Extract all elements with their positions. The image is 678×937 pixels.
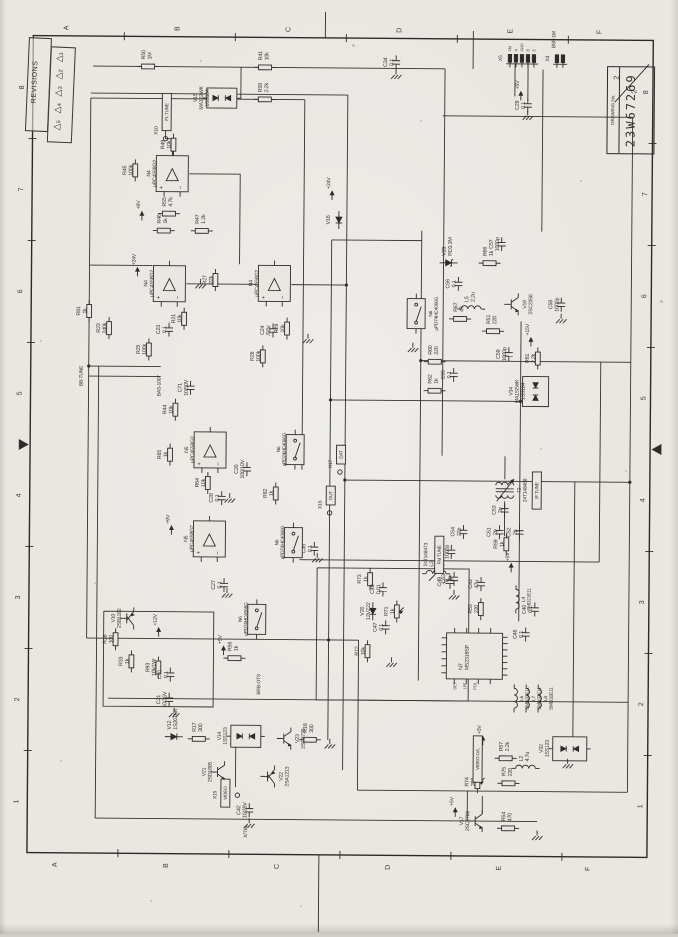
net-label: BB-TUNE xyxy=(79,365,85,386)
net-label: POL xyxy=(472,681,477,689)
drawing-sheet: ABCDEFABCDEF8765432187654321R501MR4110kR… xyxy=(0,0,678,937)
svg-text:N6µPD74HC4066G: N6µPD74HC4066G xyxy=(274,525,286,559)
diode-V28: V28RD3.3M xyxy=(440,236,458,266)
title-block-divider xyxy=(618,67,620,153)
svg-text:N6µPD74HC4066G: N6µPD74HC4066G xyxy=(238,602,250,636)
capacitor-C42: C4210/25V xyxy=(236,802,253,819)
capacitor-C54: C5422p xyxy=(450,525,467,539)
svg-text:R25100k: R25100k xyxy=(136,343,148,354)
svg-text:R554.7k: R554.7k xyxy=(162,197,174,207)
supply-+5V: +5V xyxy=(217,635,225,656)
supply-+9V: +9V xyxy=(136,200,144,221)
svg-text:R621k: R621k xyxy=(428,374,440,384)
capacitor-C20: C20100/10V xyxy=(234,459,251,478)
svg-text:+5V: +5V xyxy=(449,796,455,806)
svg-text:R6410k: R6410k xyxy=(195,478,207,488)
ground-symbol xyxy=(386,657,396,667)
ground-symbol xyxy=(449,590,459,600)
resistor-R75: R75220 xyxy=(497,767,519,786)
supply-+5V: +5V xyxy=(449,796,457,817)
svg-text:V232SC2735: V232SC2735 xyxy=(295,728,307,749)
net-label: 24T148473 xyxy=(423,542,429,566)
ground-symbol xyxy=(225,493,235,503)
drawing-frame: ABCDEFABCDEF8765432187654321 xyxy=(12,9,664,934)
capacitor-C47: C470.1 xyxy=(373,620,390,634)
svg-text:IF TUNE: IF TUNE xyxy=(534,482,539,499)
svg-text:7: 7 xyxy=(18,187,25,191)
svg-text:C7110/50V: C7110/50V xyxy=(178,379,190,396)
supply-+9V: +9V xyxy=(165,514,173,535)
svg-text:3: 3 xyxy=(15,595,22,599)
svg-text:5: 5 xyxy=(16,391,23,395)
revision-delta-5: △₅ xyxy=(51,120,62,131)
revision-markers: △₁△₂△₃△₄△₅ xyxy=(47,46,76,143)
svg-text:C4210/25V: C4210/25V xyxy=(236,802,248,819)
svg-text:C4347u: C4347u xyxy=(468,579,480,589)
sheet-number-bottom: 2 xyxy=(631,90,638,94)
scan-speck xyxy=(660,300,663,303)
svg-text:C: C xyxy=(285,27,292,32)
connector-X4: X4 xyxy=(545,55,567,68)
svg-text:X10: X10 xyxy=(154,126,160,135)
wire xyxy=(542,70,543,232)
resistor-R38: R38100 xyxy=(102,628,118,650)
capacitor-C57: C571000p xyxy=(489,237,506,251)
ground-symbol xyxy=(556,314,566,324)
svg-text:L52.2u: L52.2u xyxy=(464,292,476,302)
net-label: BSF-1M xyxy=(551,31,557,48)
scan-speck xyxy=(60,760,62,762)
drawing-number: 23W67269 xyxy=(623,72,638,148)
dual-diode-V14: V141SS123 xyxy=(217,725,265,747)
svg-text:C560.1: C560.1 xyxy=(445,279,457,289)
capacitor-C52: C522p xyxy=(506,525,523,539)
svg-text:R9310k/1W: R9310k/1W xyxy=(145,658,157,676)
opamp-N4: +−N4µPC4558G2 xyxy=(146,150,188,196)
wire xyxy=(627,117,632,792)
svg-text:C700.1: C700.1 xyxy=(157,670,169,680)
svg-text:FL TUNE: FL TUNE xyxy=(164,103,169,121)
sheet-number-top: 2 xyxy=(613,76,620,80)
net-label: LPF xyxy=(462,682,467,690)
svg-text:VIDEO LVL: VIDEO LVL xyxy=(475,748,480,770)
wire xyxy=(573,482,575,737)
resistor-R41: R4110k xyxy=(254,51,276,70)
svg-text:+5V: +5V xyxy=(515,80,521,90)
svg-text:C571000p: C571000p xyxy=(489,237,501,251)
capacitor-C46: C460.1 xyxy=(513,627,530,641)
svg-text:N4µPC4558G2: N4µPC4558G2 xyxy=(143,270,155,297)
resistor-R28: R28100k xyxy=(250,345,266,367)
junction-dot xyxy=(345,284,348,287)
resistor-R27: R2722k xyxy=(202,269,218,291)
capacitor-C71: C7110/50V xyxy=(178,379,195,396)
svg-text:A: A xyxy=(52,862,59,867)
svg-text:N6µPD74HC4066G: N6µPD74HC4066G xyxy=(276,432,288,466)
opamp-N4: +−N4µPC4558G2 xyxy=(248,260,290,306)
svg-text:2: 2 xyxy=(638,702,645,706)
tag-VIDEO-LVL: VIDEO LVL xyxy=(473,736,482,782)
dual-diode-V34: V34MA152WK1SS184 xyxy=(508,376,548,406)
wire xyxy=(89,376,161,377)
supply-+15V: +15V xyxy=(525,323,533,346)
svg-text:R53220: R53220 xyxy=(468,604,480,614)
svg-text:BAS-100T: BAS-100T xyxy=(156,375,162,397)
ic-N7: N7M52318SP xyxy=(441,628,507,685)
svg-text:C270.1: C270.1 xyxy=(211,580,223,590)
svg-text:R561k: R561k xyxy=(227,642,239,652)
scan-speck xyxy=(540,448,542,450)
capacitor-C55: C550.1 xyxy=(441,368,458,382)
svg-text:C522p: C522p xyxy=(506,527,518,537)
svg-text:2: 2 xyxy=(14,697,21,701)
capacitor-C53: C532p xyxy=(492,503,509,517)
net-label: DET xyxy=(452,681,457,689)
svg-text:R612.2k: R612.2k xyxy=(525,353,537,363)
svg-text:N6µPD74HC4066G: N6µPD74HC4066G xyxy=(428,296,440,330)
svg-text:R17300: R17300 xyxy=(192,722,204,732)
scan-speck xyxy=(300,905,302,907)
resistor-R55: R554.7k xyxy=(158,197,180,216)
svg-text:F: F xyxy=(596,30,603,34)
scan-speck xyxy=(200,60,202,62)
junction-dot xyxy=(327,639,330,642)
revisions-title: REVISIONS xyxy=(30,47,40,117)
resistor-R23: R23240k xyxy=(96,317,112,339)
svg-text:R2110k: R2110k xyxy=(171,314,183,324)
wire xyxy=(95,366,99,818)
svg-text:X/TBL: X/TBL xyxy=(243,824,249,837)
svg-text:L24.7u: L24.7u xyxy=(519,752,531,762)
resistor-R64: R6410k xyxy=(195,472,211,494)
svg-text:R4910k: R4910k xyxy=(160,140,172,150)
capacitor-C23: C230.1 xyxy=(156,323,173,337)
svg-text:R60220: R60220 xyxy=(428,345,440,355)
svg-text:C581000p: C581000p xyxy=(548,297,560,311)
wire xyxy=(357,790,627,792)
svg-text:R471.2k: R471.2k xyxy=(195,214,207,224)
inductor-L2: L24.7u xyxy=(512,751,540,768)
svg-text:V321SS123: V321SS123 xyxy=(539,740,551,758)
resistor-R53: R53220 xyxy=(468,598,484,620)
svg-text:+5V: +5V xyxy=(505,552,511,562)
svg-text:C470.1: C470.1 xyxy=(373,622,385,632)
wire xyxy=(332,240,422,241)
resistor-R50: R501M xyxy=(137,50,159,69)
svg-text:L8SMD32E11: L8SMD32E11 xyxy=(543,687,555,710)
svg-text:N4µPC4558G2: N4µPC4558G2 xyxy=(248,270,260,297)
resistor-R71: R711k xyxy=(384,600,404,622)
svg-text:C2110/25V: C2110/25V xyxy=(156,691,168,708)
svg-text:C230.1: C230.1 xyxy=(156,325,168,335)
svg-text:E: E xyxy=(507,29,514,34)
analog-switch-N6: N6µPD74HC4066G xyxy=(407,294,440,334)
svg-text:GND: GND xyxy=(520,43,524,51)
net-label: BAS-100T xyxy=(156,375,162,397)
ground-symbol xyxy=(532,831,542,841)
svg-text:C532p: C532p xyxy=(492,505,504,515)
wire xyxy=(87,98,91,638)
ground-symbol xyxy=(222,588,232,598)
supply-+24V: +24V xyxy=(326,177,334,200)
ground-symbol xyxy=(408,343,418,353)
svg-text:7: 7 xyxy=(642,192,649,196)
supply-+12V: +12V xyxy=(153,613,161,636)
capacitor-C51: C512p xyxy=(486,525,503,539)
resistor-R61: R612.2k xyxy=(525,347,541,369)
svg-text:+9V: +9V xyxy=(165,514,171,524)
wire xyxy=(186,284,257,285)
svg-text:R582.2k: R582.2k xyxy=(258,82,270,92)
svg-text:V192SC2358: V192SC2358 xyxy=(522,294,534,315)
net-label: X/TBL xyxy=(243,824,249,837)
svg-text:N5µPC4558G2: N5µPC4558G2 xyxy=(184,436,196,463)
svg-text:C512p: C512p xyxy=(486,527,498,537)
diode-V20: V2012VZ22 xyxy=(360,602,376,620)
ground-symbol xyxy=(312,553,322,563)
port-X16: OUTX16 xyxy=(318,486,336,515)
svg-text:DAT: DAT xyxy=(339,450,344,459)
junction-dot xyxy=(629,481,632,484)
dual-diode-V32: V321SS123 xyxy=(539,737,591,761)
capacitor-C56: C560.1 xyxy=(445,277,462,291)
svg-text:BSF-1M: BSF-1M xyxy=(551,31,557,48)
capacitor-C43: C4347u xyxy=(468,577,485,591)
scan-speck xyxy=(352,44,355,47)
scan-speck xyxy=(420,120,422,122)
port-X10: FL TUNEX10 xyxy=(154,93,172,141)
analog-switch-N6: N6µPD74HC4066G xyxy=(276,429,304,469)
svg-text:+12V: +12V xyxy=(153,613,159,625)
diode-V16: V16 xyxy=(326,211,342,229)
wire xyxy=(345,480,630,482)
svg-text:C591000p: C591000p xyxy=(496,347,508,361)
svg-text:R501M: R501M xyxy=(141,50,153,60)
svg-text:+24V: +24V xyxy=(132,253,138,265)
capacitor-C27: C270.1 xyxy=(211,578,228,592)
svg-text:V222SA1213: V222SA1213 xyxy=(278,766,290,786)
resistor-R56: R561k xyxy=(223,642,245,661)
svg-text:POL: POL xyxy=(472,681,477,689)
schematic-canvas: ABCDEFABCDEF8765432187654321R501MR4110kR… xyxy=(0,0,678,937)
svg-text:N4µPC4558G2: N4µPC4558G2 xyxy=(146,160,158,187)
svg-text:C480.01: C480.01 xyxy=(370,584,382,594)
svg-text:R51220: R51220 xyxy=(486,315,498,325)
wire xyxy=(89,366,161,367)
ground-symbol xyxy=(523,110,533,120)
ground-symbol xyxy=(391,69,401,79)
junction-dot xyxy=(419,359,422,362)
scan-speck xyxy=(94,582,96,584)
svg-text:V172SC2786: V172SC2786 xyxy=(459,811,471,832)
revision-delta-4: △₄ xyxy=(52,103,63,114)
svg-text:X4: X4 xyxy=(545,55,551,61)
svg-text:+5V: +5V xyxy=(477,725,483,735)
svg-text:C20100/10V: C20100/10V xyxy=(234,459,246,478)
svg-text:V16: V16 xyxy=(326,215,332,224)
tag-IF-TUNE: IF TUNE xyxy=(532,472,541,509)
transistor-V23: V232SC2735 xyxy=(277,728,307,750)
resistor-R46: R461k xyxy=(153,214,175,233)
ground-symbol xyxy=(303,334,313,344)
resistor-R47: R471.2k xyxy=(191,214,213,233)
dual-diode-V15: V15MA152WK1SS184 xyxy=(193,85,241,110)
revision-delta-3: △₃ xyxy=(53,86,64,97)
svg-text:4: 4 xyxy=(640,498,647,502)
svg-text:C632p: C632p xyxy=(441,574,453,584)
svg-text:+9V: +9V xyxy=(136,200,142,210)
svg-text:E: E xyxy=(532,48,536,51)
wire xyxy=(343,95,348,770)
opamp-N5: +−N5µPC4558G2 xyxy=(183,516,225,562)
svg-text:VIDEO: VIDEO xyxy=(223,786,228,800)
svg-text:LPF: LPF xyxy=(462,682,467,690)
svg-text:8: 8 xyxy=(19,85,26,89)
svg-text:R38100: R38100 xyxy=(103,634,115,644)
svg-text:R45100k: R45100k xyxy=(122,164,134,175)
svg-text:FM: FM xyxy=(508,46,512,51)
resistor-R45: R45100k xyxy=(122,159,138,181)
connector-X5: FMAGNDBEX5 xyxy=(498,43,538,68)
capacitor-C29: C290.1 xyxy=(515,98,532,112)
svg-text:C350.1: C350.1 xyxy=(301,544,313,554)
svg-text:B: B xyxy=(526,48,530,51)
svg-text:C290.1: C290.1 xyxy=(515,101,527,111)
transistor-V19: V192SC2358 xyxy=(504,293,534,315)
transistor-V22: V222SA1213 xyxy=(260,765,290,787)
opamp-N5: +−N5µPC4558G2 xyxy=(184,427,226,473)
drawing-no-label: DRAWING No. xyxy=(610,79,615,141)
net-label: BRB-OTS xyxy=(256,673,262,695)
svg-text:C: C xyxy=(274,864,281,869)
svg-text:X15: X15 xyxy=(212,790,218,799)
svg-text:V141SS123: V141SS123 xyxy=(217,727,229,745)
svg-text:R23240k: R23240k xyxy=(96,322,108,333)
svg-text:3: 3 xyxy=(639,600,646,604)
supply-+24V: +24V xyxy=(131,253,139,276)
resistor-R44: R4410k xyxy=(162,399,178,421)
svg-text:R54470: R54470 xyxy=(501,812,513,822)
scan-speck xyxy=(40,340,42,342)
capacitor-C59: C591000p xyxy=(496,347,513,361)
junction-dot xyxy=(344,479,347,482)
svg-text:6: 6 xyxy=(17,289,24,293)
revision-delta-1: △₁ xyxy=(54,52,65,62)
svg-text:OUT: OUT xyxy=(328,491,333,501)
resistor-R21: R2110k xyxy=(171,308,187,330)
svg-text:V2012VZ22: V2012VZ22 xyxy=(360,602,372,620)
svg-text:B: B xyxy=(174,26,181,31)
svg-text:C340.1: C340.1 xyxy=(383,57,395,67)
svg-text:V121S2076A: V121S2076A xyxy=(167,708,179,729)
resistor-R57: R572.2k xyxy=(495,741,517,760)
wire xyxy=(519,321,521,621)
capacitor-C21: C2110/25V xyxy=(156,691,173,708)
wire xyxy=(443,116,633,117)
svg-text:1: 1 xyxy=(13,799,20,803)
resistor-R82: R821k xyxy=(263,482,279,504)
svg-text:R7210k: R7210k xyxy=(354,646,366,656)
svg-text:DET: DET xyxy=(452,681,457,689)
analog-switch-N6: N6µPD74HC4066G xyxy=(238,599,266,639)
svg-text:+5V: +5V xyxy=(218,635,224,645)
capacitor-C35: C350.1 xyxy=(301,542,318,556)
resistor-R58: R582.2k xyxy=(254,82,276,101)
svg-text:5: 5 xyxy=(640,396,647,400)
opamp-N4: +−N4µPC4558G2 xyxy=(143,260,185,306)
resistor-R49: R4910k xyxy=(160,134,176,156)
scanned-schematic-page: ABCDEFABCDEF8765432187654321R501MR4110kR… xyxy=(0,0,678,934)
junction-dot xyxy=(329,399,332,402)
resistor-R67: R6747 xyxy=(449,302,471,321)
svg-text:R6747: R6747 xyxy=(453,302,465,312)
resistor-R51: R51220 xyxy=(482,315,504,334)
svg-text:+15V: +15V xyxy=(525,323,531,335)
resistor-R17: R17300 xyxy=(188,722,210,741)
tag-FM-TUNE: FM TUNE xyxy=(435,536,444,573)
ground-symbol xyxy=(325,739,335,749)
revision-delta-2: △₂ xyxy=(53,69,64,80)
supply-+5V: +5V xyxy=(515,80,523,101)
svg-text:R572.2k: R572.2k xyxy=(499,741,511,751)
transistor-V10: V102SB1182 xyxy=(111,607,135,629)
svg-text:BRB-OTS: BRB-OTS xyxy=(256,673,262,695)
svg-text:6: 6 xyxy=(641,294,648,298)
wire xyxy=(442,69,445,456)
svg-text:X16: X16 xyxy=(318,500,324,509)
svg-text:N5µPC4558G2: N5µPC4558G2 xyxy=(183,525,195,552)
svg-text:R4110k: R4110k xyxy=(258,51,270,61)
svg-text:C280.1: C280.1 xyxy=(209,493,221,503)
resistor-R81: R811k xyxy=(76,300,92,322)
diode-V12: V121S2076A xyxy=(165,708,183,740)
resistor-R25: R25100k xyxy=(136,338,152,360)
resistor-R33: R331k xyxy=(118,650,134,672)
svg-text:24T148473: 24T148473 xyxy=(423,542,429,566)
scan-speck xyxy=(150,900,152,902)
capacitor-C58: C581000p xyxy=(548,297,565,311)
port-X17: DATX17 xyxy=(328,445,346,474)
wire xyxy=(599,362,601,562)
scan-speck xyxy=(625,470,627,472)
svg-text:V212SD1805: V212SD1805 xyxy=(201,761,213,782)
svg-text:C24/50V: C24/50V xyxy=(260,325,272,336)
svg-text:R2722k: R2722k xyxy=(202,275,214,285)
svg-text:X5: X5 xyxy=(498,55,504,61)
svg-text:C5422p: C5422p xyxy=(450,527,462,537)
analog-switch-N6: N6µPD74HC4066G xyxy=(274,522,302,562)
wire xyxy=(357,640,358,790)
svg-text:F: F xyxy=(585,867,592,871)
svg-text:A: A xyxy=(514,48,518,51)
svg-text:+24V: +24V xyxy=(326,177,332,189)
svg-text:R28100k: R28100k xyxy=(250,350,262,361)
wire xyxy=(330,400,520,401)
supply-+5V: +5V xyxy=(505,552,513,573)
svg-text:R4410k: R4410k xyxy=(162,405,174,415)
resistor-R65: R651k xyxy=(157,444,173,466)
svg-text:X17: X17 xyxy=(328,459,334,468)
wire xyxy=(418,231,422,681)
capacitor-C34: C340.1 xyxy=(383,55,400,69)
svg-text:A: A xyxy=(63,25,70,30)
svg-text:1: 1 xyxy=(637,804,644,808)
svg-text:C460.1: C460.1 xyxy=(513,630,525,640)
svg-text:B: B xyxy=(163,863,170,868)
scan-speck xyxy=(580,180,582,182)
svg-text:4: 4 xyxy=(16,493,23,497)
capacitor-C28: C280.1 xyxy=(209,491,226,505)
